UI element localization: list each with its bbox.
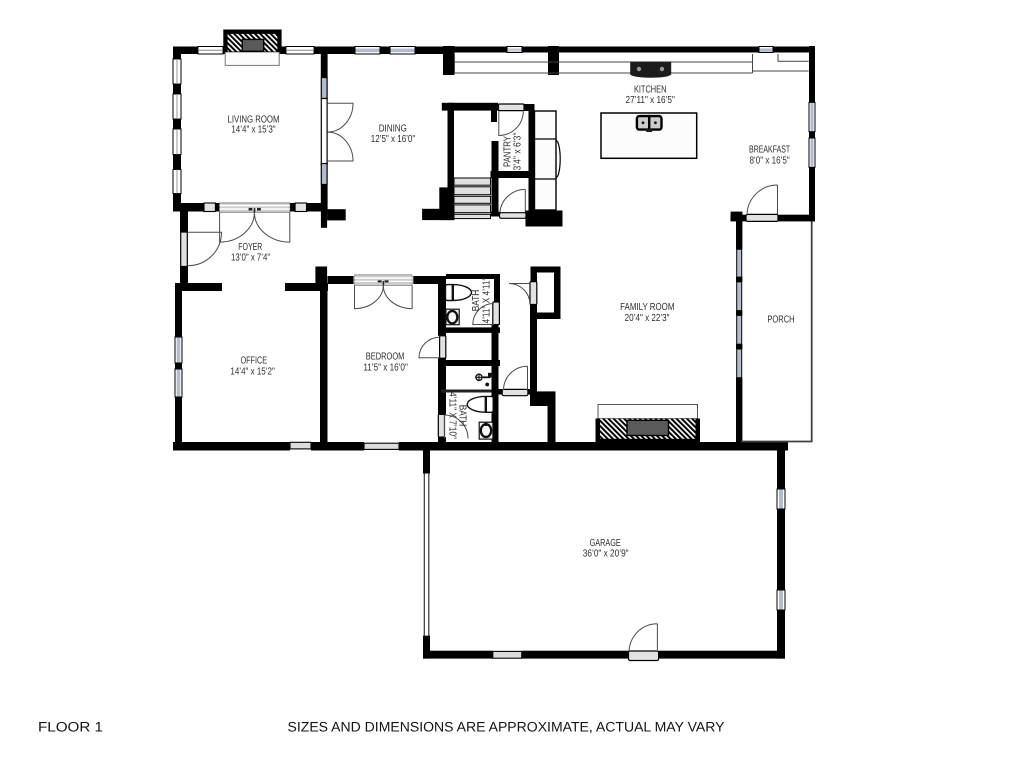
svg-text:8’0" x 16’5": 8’0" x 16’5" — [749, 156, 790, 167]
svg-text:36’0" x 20’9": 36’0" x 20’9" — [583, 549, 629, 560]
svg-text:PORCH: PORCH — [767, 315, 794, 326]
svg-text:FOYER: FOYER — [238, 242, 262, 253]
svg-text:FLOOR 1: FLOOR 1 — [38, 720, 103, 735]
svg-text:SIZES AND DIMENSIONS ARE APPRO: SIZES AND DIMENSIONS ARE APPROXIMATE, AC… — [288, 720, 725, 735]
svg-text:11’5" x 16’0": 11’5" x 16’0" — [363, 362, 408, 373]
svg-text:KITCHEN: KITCHEN — [634, 85, 667, 96]
svg-text:3’4" x 6’3": 3’4" x 6’3" — [512, 132, 523, 170]
svg-text:GARAGE: GARAGE — [590, 538, 621, 549]
svg-text:27’11" x 16’5": 27’11" x 16’5" — [626, 95, 676, 106]
svg-text:BEDROOM: BEDROOM — [366, 352, 405, 363]
svg-text:OFFICE: OFFICE — [240, 356, 267, 367]
svg-text:4’11" X 7’10": 4’11" X 7’10" — [447, 392, 458, 439]
svg-text:20’4" x 22’3": 20’4" x 22’3" — [625, 313, 670, 324]
svg-text:13’0" x 7’4": 13’0" x 7’4" — [231, 252, 270, 263]
svg-text:12’5" x 16’0": 12’5" x 16’0" — [371, 134, 416, 145]
svg-text:BATH: BATH — [471, 290, 482, 312]
svg-text:4’11" X 4’11": 4’11" X 4’11" — [482, 277, 493, 323]
svg-text:BREAKFAST: BREAKFAST — [749, 145, 790, 156]
svg-text:FAMILY ROOM: FAMILY ROOM — [620, 302, 674, 313]
svg-text:14’4" x 15’2": 14’4" x 15’2" — [230, 366, 275, 377]
svg-text:14’4" x 15’3": 14’4" x 15’3" — [231, 125, 276, 136]
svg-text:DINING: DINING — [379, 123, 407, 134]
